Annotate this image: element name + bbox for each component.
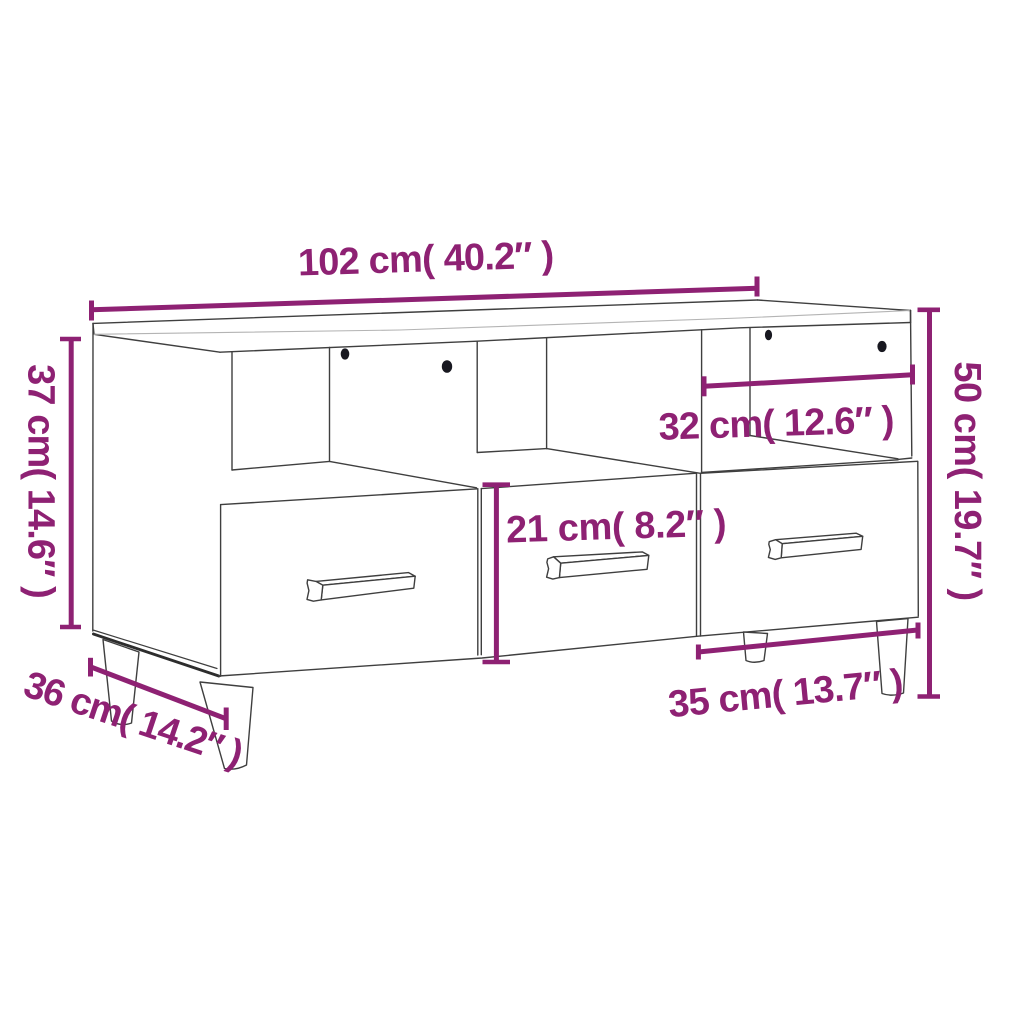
svg-text:21 cm( 8.2″ ): 21 cm( 8.2″ ) (506, 503, 727, 552)
svg-text:50 cm( 19.7″ ): 50 cm( 19.7″ ) (946, 361, 988, 600)
svg-text:102 cm( 40.2″ ): 102 cm( 40.2″ ) (297, 235, 554, 285)
svg-text:32 cm( 12.6″ ): 32 cm( 12.6″ ) (658, 399, 894, 448)
svg-text:37 cm( 14.6″ ): 37 cm( 14.6″ ) (20, 364, 62, 598)
